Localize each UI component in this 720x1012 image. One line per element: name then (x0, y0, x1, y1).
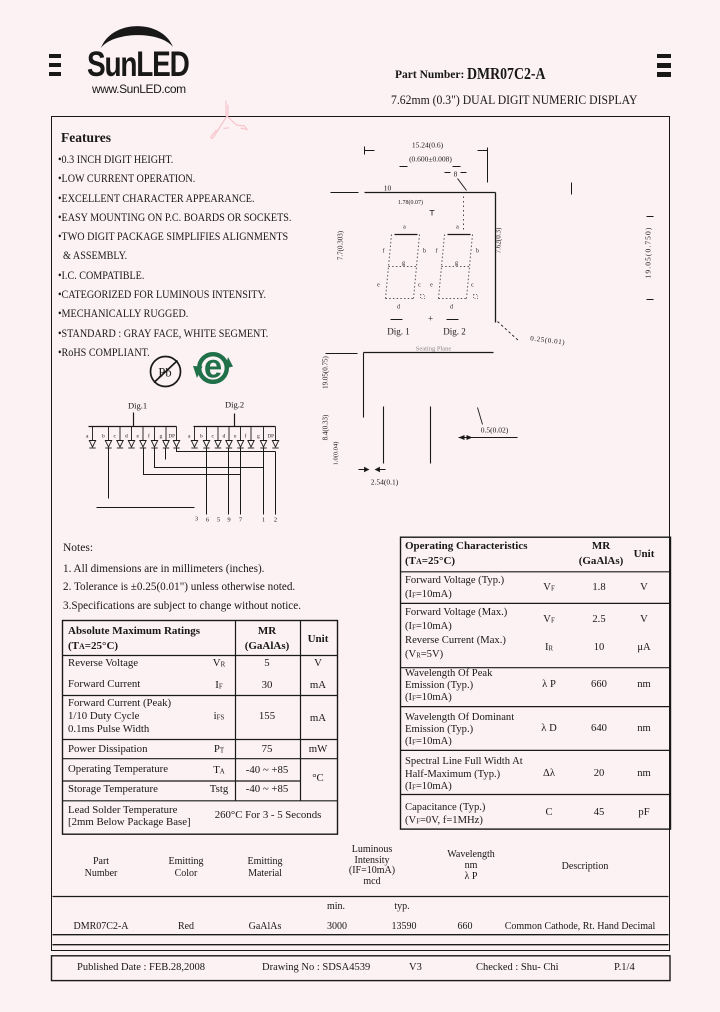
svg-text:DP: DP (268, 435, 275, 440)
svg-text:Dig.2: Dig.2 (225, 400, 244, 410)
svg-text:7: 7 (239, 517, 243, 524)
svg-text:d: d (223, 434, 226, 440)
svg-text:7.7(0.303): 7.7(0.303) (337, 230, 345, 260)
svg-text:g: g (257, 434, 260, 440)
svg-text:d: d (125, 434, 128, 440)
svg-text:9: 9 (227, 517, 230, 524)
svg-text:1: 1 (262, 517, 265, 524)
svg-text:+: + (428, 314, 433, 324)
svg-text:a: a (188, 434, 191, 440)
svg-text:Dig. 2: Dig. 2 (443, 327, 466, 337)
svg-text:a: a (403, 225, 406, 231)
svg-text:e: e (137, 434, 140, 440)
svg-text:Seating Plane: Seating Plane (416, 346, 452, 353)
svg-text:c: c (471, 283, 474, 289)
svg-text:b: b (102, 434, 105, 440)
svg-text:8.4(0.33): 8.4(0.33) (322, 414, 330, 440)
svg-text:1.78(0.07): 1.78(0.07) (398, 199, 423, 206)
svg-text:e: e (234, 434, 237, 440)
svg-text:g: g (160, 434, 163, 440)
svg-text:e: e (430, 283, 433, 289)
svg-text:f: f (383, 248, 385, 255)
svg-text:g: g (455, 261, 458, 267)
svg-text:e: e (204, 348, 222, 385)
svg-text:Dig. 1: Dig. 1 (387, 327, 410, 337)
svg-text:Dig.1: Dig.1 (128, 401, 147, 411)
svg-text:c: c (418, 283, 421, 289)
svg-text:f: f (148, 433, 150, 440)
svg-text:b: b (423, 249, 426, 255)
svg-text:d: d (397, 305, 400, 311)
svg-text:b: b (476, 249, 479, 255)
svg-text:Pb: Pb (158, 366, 171, 380)
svg-text:3: 3 (195, 516, 198, 523)
svg-text:0.5(0.02): 0.5(0.02) (481, 426, 509, 435)
svg-text:b: b (200, 434, 203, 440)
svg-text:f: f (436, 248, 438, 255)
svg-text:c: c (212, 434, 215, 440)
svg-text:e: e (377, 283, 380, 289)
svg-text:2: 2 (274, 517, 277, 524)
svg-text:c: c (114, 434, 117, 440)
svg-text:5: 5 (217, 517, 220, 524)
svg-text:d: d (450, 305, 453, 311)
svg-text:8: 8 (454, 170, 458, 179)
svg-text:a: a (456, 225, 459, 231)
svg-text:2.54(0.1): 2.54(0.1) (371, 478, 399, 487)
svg-text:1.0(0.04): 1.0(0.04) (333, 442, 340, 466)
svg-text:f: f (245, 433, 247, 440)
svg-text:DP: DP (169, 435, 176, 440)
svg-text:g: g (402, 261, 405, 267)
svg-text:10: 10 (384, 184, 392, 193)
svg-text:(0.600±0.008): (0.600±0.008) (409, 155, 452, 164)
svg-text:7.62(0.3): 7.62(0.3) (495, 227, 503, 253)
svg-text:a: a (86, 434, 89, 440)
svg-text:19.05(0.75): 19.05(0.75) (322, 356, 330, 389)
svg-text:15.24(0.6): 15.24(0.6) (412, 141, 444, 150)
svg-text:0.25(0.01): 0.25(0.01) (530, 334, 566, 346)
svg-text:6: 6 (206, 517, 210, 524)
svg-text:19.05(0.750): 19.05(0.750) (644, 227, 653, 279)
